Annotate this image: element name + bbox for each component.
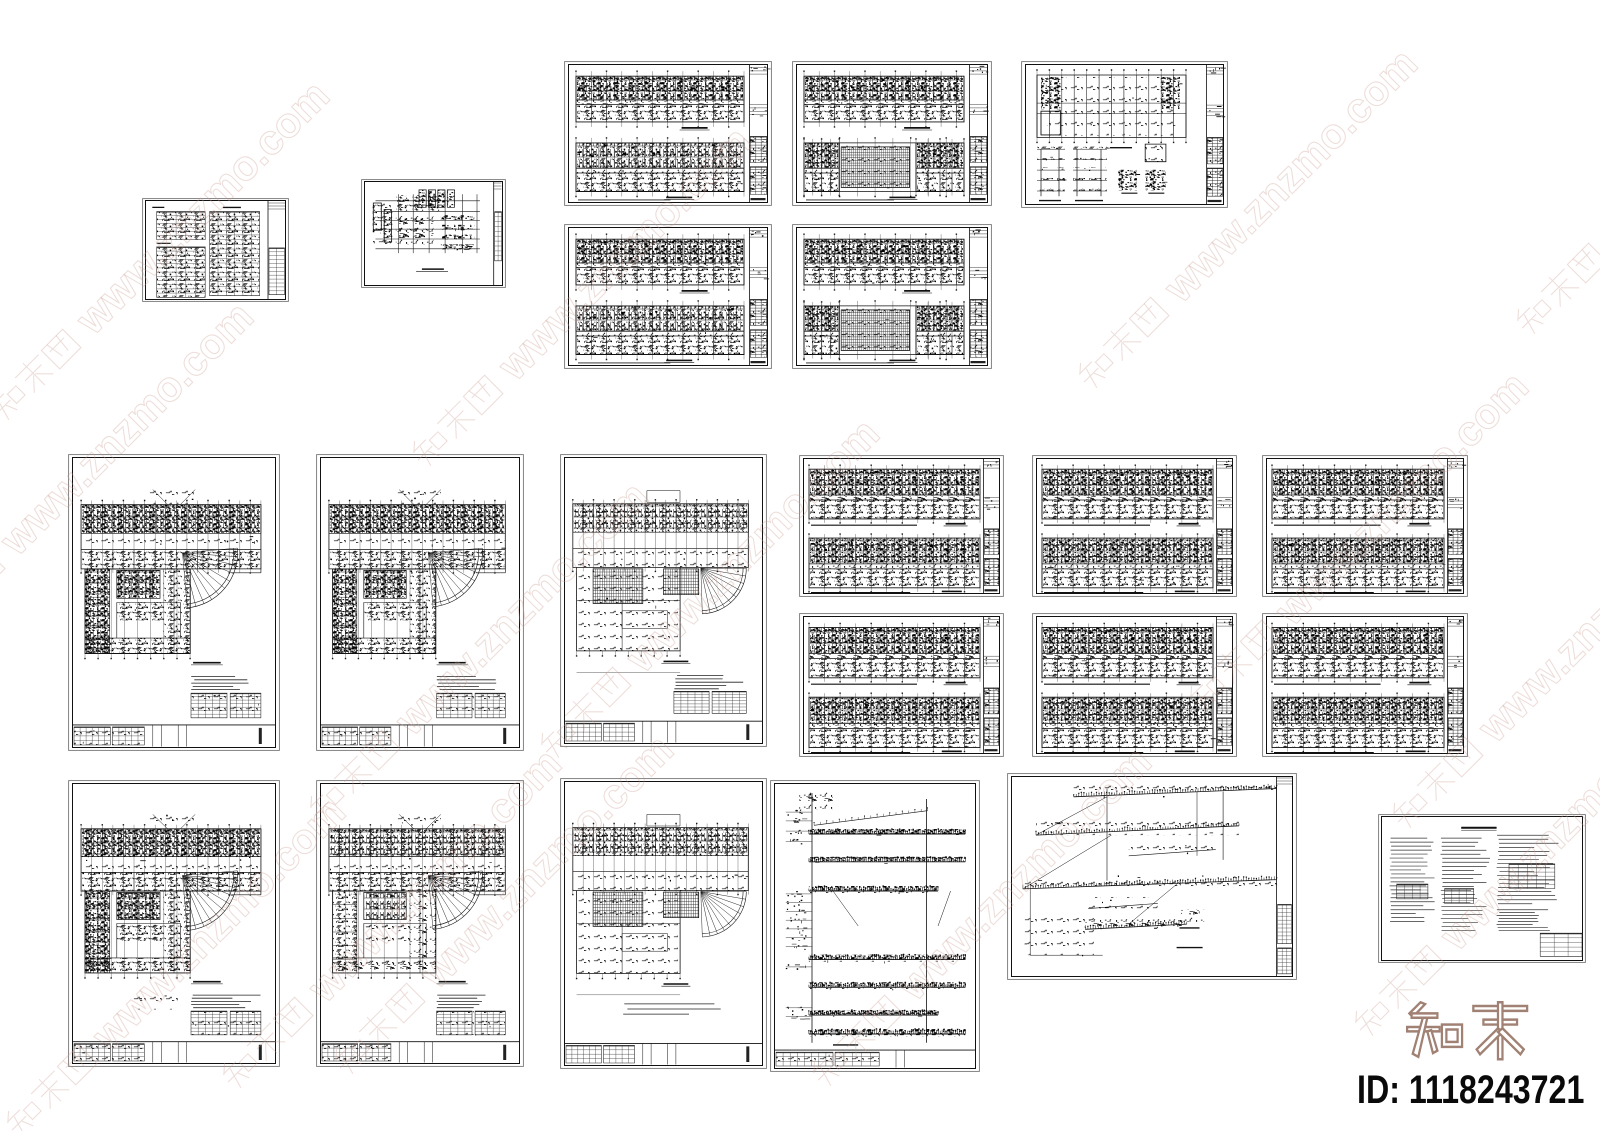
svg-text:www.znzmo.com: www.znzmo.com xyxy=(616,409,888,681)
svg-text:www.znzmo.com: www.znzmo.com xyxy=(385,472,657,744)
svg-text:www.znzmo.com: www.znzmo.com xyxy=(1468,479,1600,751)
svg-text:www.znzmo.com: www.znzmo.com xyxy=(1592,0,1600,257)
svg-text:www.znzmo.com: www.znzmo.com xyxy=(488,117,760,389)
svg-text:www.znzmo.com: www.znzmo.com xyxy=(66,71,338,343)
svg-text:www.znzmo.com: www.znzmo.com xyxy=(0,292,262,564)
svg-text:www.znzmo.com: www.znzmo.com xyxy=(1265,362,1537,634)
svg-text:www.znzmo.com: www.znzmo.com xyxy=(888,737,1160,1009)
svg-text:www.znzmo.com: www.znzmo.com xyxy=(82,787,354,1059)
svg-text:www.znzmo.com: www.znzmo.com xyxy=(1154,39,1426,311)
